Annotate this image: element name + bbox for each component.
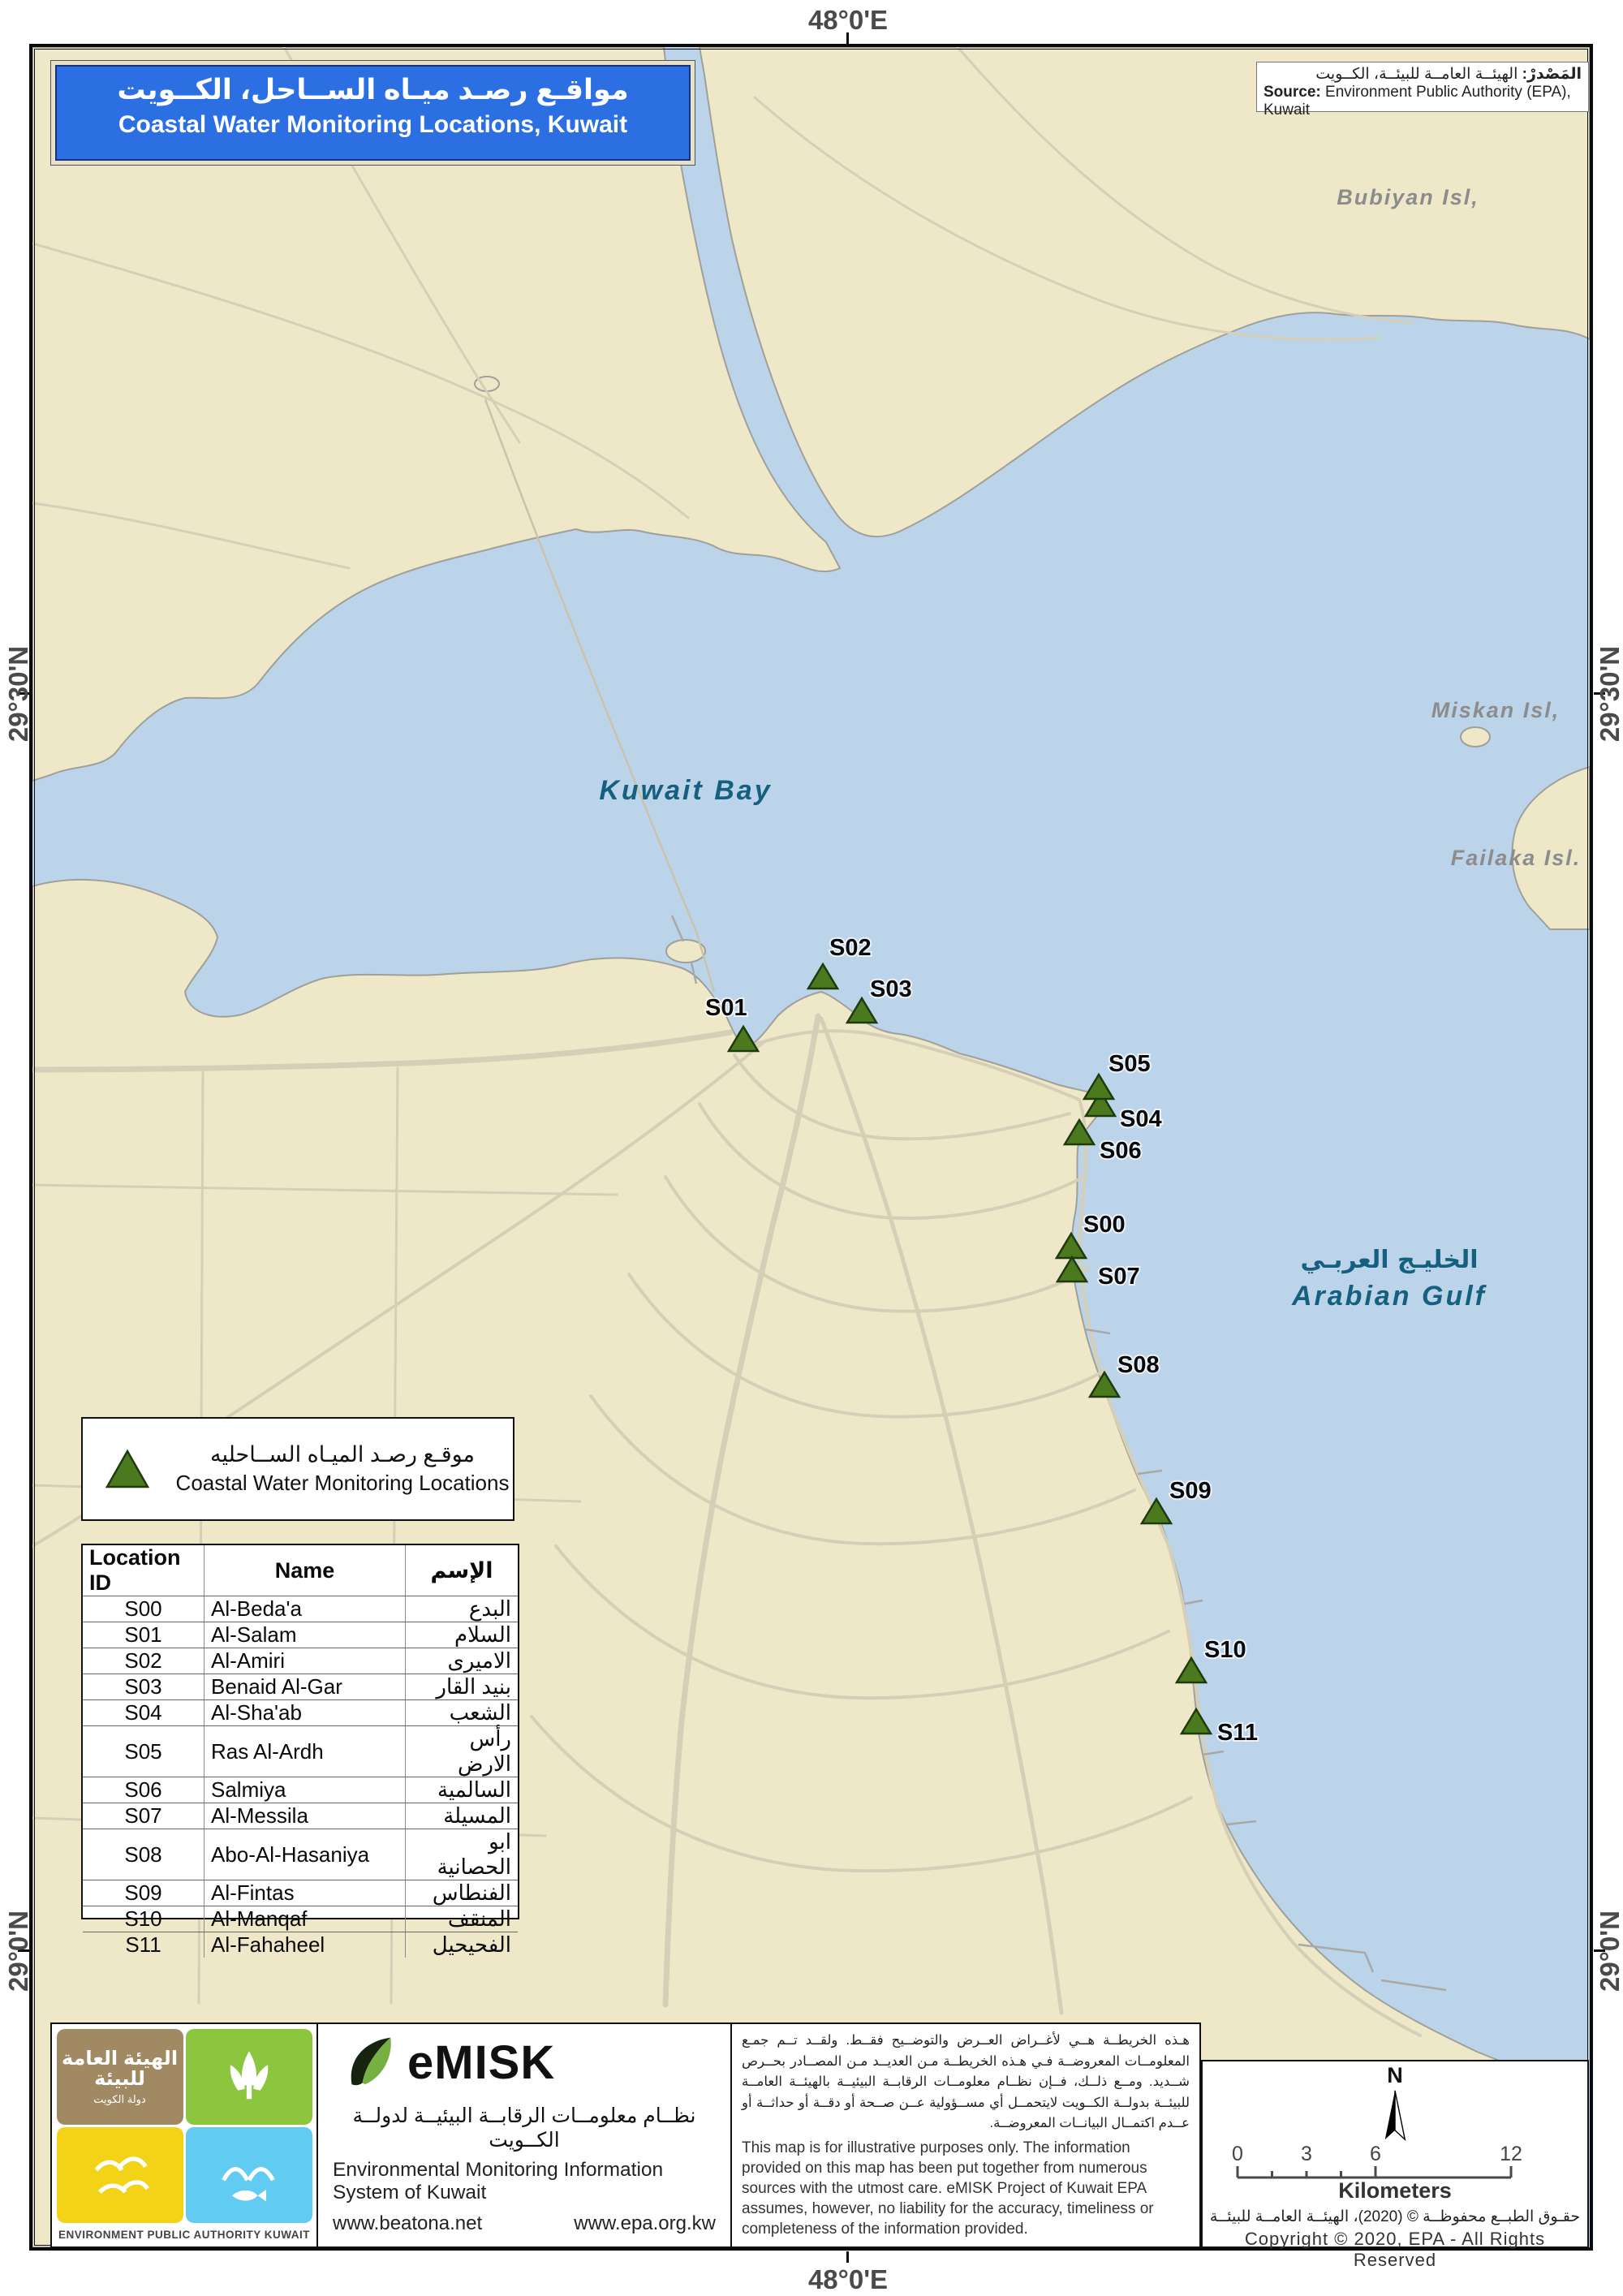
scale-box: N 0 3 6 12 Kilometers حقـوق الطبــ	[1201, 2060, 1589, 2248]
table-row: S06 Salmiya السالمية	[83, 1777, 518, 1803]
cell-location-id: S10	[83, 1906, 204, 1932]
miskan-island	[1461, 727, 1490, 747]
epa-logo: الهيئة العامة للبيئة دولة الكويت	[57, 2029, 312, 2223]
cell-name-ar: بنيد القار	[406, 1674, 518, 1699]
legend-box: موقـع رصـد الميـاه الســاحليه Coastal Wa…	[81, 1417, 514, 1521]
table-row: S02 Al-Amiri الاميرى	[83, 1648, 518, 1674]
cell-name: Al-Messila	[204, 1803, 406, 1829]
scale-12: 12	[1500, 2143, 1522, 2166]
table-row: S03 Benaid Al-Gar بنيد القار	[83, 1674, 518, 1700]
map-title-arabic: مواقـع رصـد ميـاه الســاحل، الكــويت	[57, 74, 689, 106]
source-box: المَصْدرْ: الهيئــة العامــة للبيئــة، ا…	[1256, 62, 1589, 112]
cell-name: Al-Salam	[204, 1622, 406, 1648]
emisk-english: Environmental Monitoring Information Sys…	[333, 2159, 716, 2204]
coord-left-lower: 29°0'N	[3, 1886, 36, 2016]
table-header-row: Location ID Name الإسم	[83, 1545, 518, 1596]
north-arrow-icon	[1379, 2088, 1411, 2142]
copyright-arabic: حقـوق الطبــع محفوظــة © (2020)، الهيئــ…	[1203, 2208, 1587, 2226]
table-row: S11 Al-Fahaheel الفحيحيل	[83, 1932, 518, 1958]
map-page: Kuwait Bay الخليـج العربـي Arabian Gulf …	[0, 0, 1623, 2296]
cell-name-ar: المنقف	[406, 1906, 518, 1932]
header-name: Name	[204, 1545, 406, 1596]
epa-tile-sea-icon	[186, 2127, 312, 2223]
cell-name: Al-Fintas	[204, 1880, 406, 1906]
cell-location-id: S05	[83, 1726, 204, 1777]
cell-name-ar: البدع	[406, 1596, 518, 1622]
epa-url[interactable]: www.epa.org.kw	[574, 2212, 716, 2235]
epa-tile-text: الهيئة العامة للبيئة	[57, 2048, 183, 2089]
cell-name-ar: الفنطاس	[406, 1880, 518, 1906]
title-box: مواقـع رصـد ميـاه الســاحل، الكــويت Coa…	[50, 60, 695, 166]
cell-location-id: S03	[83, 1674, 204, 1699]
cell-name: Al-Sha'ab	[204, 1700, 406, 1725]
beatona-url[interactable]: www.beatona.net	[333, 2212, 482, 2235]
cell-location-id: S08	[83, 1829, 204, 1880]
coord-left-upper: 29°30'N	[3, 629, 36, 759]
station-label-S05: S05	[1109, 1051, 1151, 1077]
station-label-S00: S00	[1083, 1212, 1126, 1238]
cell-location-id: S11	[83, 1932, 204, 1958]
emisk-arabic: نظــام معلومــات الرقابــة البيئيــة لدو…	[333, 2104, 716, 2152]
arabian-gulf-label-en: Arabian Gulf	[1291, 1281, 1487, 1312]
table-row: S07 Al-Messila المسيلة	[83, 1803, 518, 1829]
station-label-S11: S11	[1217, 1720, 1258, 1746]
cell-name: Benaid Al-Gar	[204, 1674, 406, 1699]
table-row: S09 Al-Fintas الفنطاس	[83, 1880, 518, 1906]
coord-bottom: 48°0'E	[775, 2264, 921, 2295]
cell-name-ar: الشعب	[406, 1700, 518, 1725]
epa-tile-subtext: دولة الكويت	[93, 2094, 145, 2105]
miskan-label: Miskan Isl,	[1431, 698, 1561, 722]
table-row: S01 Al-Salam السلام	[83, 1622, 518, 1648]
cell-name-ar: الفحيحيل	[406, 1932, 518, 1958]
header-location-id: Location ID	[83, 1545, 204, 1596]
epa-caption: ENVIRONMENT PUBLIC AUTHORITY KUWAIT	[58, 2229, 310, 2241]
table-row: S04 Al-Sha'ab الشعب	[83, 1700, 518, 1726]
cell-name: Abo-Al-Hasaniya	[204, 1829, 406, 1880]
kuwait-bay-label: Kuwait Bay	[599, 775, 772, 806]
cell-name: Al-Fahaheel	[204, 1932, 406, 1958]
stations-table: Location ID Name الإسم S00 Al-Beda'a الب…	[81, 1544, 519, 1919]
copyright-english: Copyright © 2020, EPA - All Rights Reser…	[1203, 2229, 1587, 2271]
station-label-S09: S09	[1169, 1478, 1212, 1504]
emisk-leaf-icon	[342, 2032, 403, 2092]
coord-top: 48°0'E	[775, 5, 921, 36]
disclaimer-arabic: هـذه الخريطــة هــي لأغــراض العــرض وال…	[742, 2031, 1190, 2134]
epa-tile-birds-icon	[57, 2127, 183, 2223]
emisk-logo-text: eMISK	[407, 2035, 555, 2090]
coord-right-lower: 29°0'N	[1595, 1886, 1623, 2016]
cell-name: Ras Al-Ardh	[204, 1726, 406, 1777]
source-label-ar: المَصْدرْ:	[1522, 66, 1582, 83]
station-label-S10: S10	[1204, 1637, 1246, 1663]
scale-0: 0	[1232, 2143, 1243, 2166]
cell-location-id: S04	[83, 1700, 204, 1725]
legend-label-en: Coastal Water Monitoring Locations	[172, 1471, 513, 1496]
cell-location-id: S01	[83, 1622, 204, 1648]
table-row: S05 Ras Al-Ardh رأس الارض	[83, 1726, 518, 1777]
cell-name-ar: الاميرى	[406, 1648, 518, 1674]
scale-3: 3	[1301, 2143, 1312, 2166]
cell-name: Al-Manqaf	[204, 1906, 406, 1932]
epa-tile-brown: الهيئة العامة للبيئة دولة الكويت	[57, 2029, 183, 2125]
scale-bar	[1203, 2164, 1591, 2180]
north-label: N	[1203, 2063, 1587, 2088]
cell-name-ar: السلام	[406, 1622, 518, 1648]
station-label-S03: S03	[870, 976, 912, 1002]
scale-numbers: 0 3 6 12	[1203, 2143, 1587, 2164]
station-label-S04: S04	[1120, 1106, 1162, 1132]
bubiyan-label: Bubiyan Isl,	[1337, 185, 1479, 209]
legend-triangle-icon	[83, 1448, 172, 1490]
map-title-english: Coastal Water Monitoring Locations, Kuwa…	[57, 111, 689, 139]
epa-tile-plant-icon	[186, 2029, 312, 2125]
epa-logo-box: الهيئة العامة للبيئة دولة الكويت ENVIRON…	[50, 2022, 318, 2248]
disclaimer-box: هـذه الخريطــة هــي لأغــراض العــرض وال…	[730, 2022, 1201, 2248]
coord-right-upper: 29°30'N	[1595, 629, 1623, 759]
scale-6: 6	[1370, 2143, 1381, 2166]
tick-bottom	[846, 2251, 849, 2263]
cell-name-ar: رأس الارض	[406, 1726, 518, 1777]
cell-name-ar: ابو الحصانية	[406, 1829, 518, 1880]
table-row: S08 Abo-Al-Hasaniya ابو الحصانية	[83, 1829, 518, 1880]
header-name-ar: الإسم	[406, 1545, 518, 1596]
cell-location-id: S09	[83, 1880, 204, 1906]
station-label-S06: S06	[1100, 1138, 1142, 1164]
cell-location-id: S00	[83, 1596, 204, 1622]
cell-location-id: S06	[83, 1777, 204, 1803]
scale-unit: Kilometers	[1203, 2178, 1587, 2203]
cell-location-id: S07	[83, 1803, 204, 1829]
disclaimer-english: This map is for illustrative purposes on…	[742, 2138, 1190, 2239]
emisk-box: eMISK نظــام معلومــات الرقابــة البيئيـ…	[316, 2022, 732, 2248]
station-label-S01: S01	[705, 995, 747, 1021]
cell-name: Al-Amiri	[204, 1648, 406, 1674]
source-text-ar: الهيئــة العامــة للبيئــة، الكــويت	[1315, 66, 1518, 83]
failaka-label: Failaka Isl.	[1451, 846, 1582, 870]
table-row: S00 Al-Beda'a البدع	[83, 1596, 518, 1622]
cell-location-id: S02	[83, 1648, 204, 1674]
legend-label-ar: موقـع رصـد الميـاه الســاحليه	[172, 1442, 513, 1467]
cell-name: Al-Beda'a	[204, 1596, 406, 1622]
station-label-S07: S07	[1098, 1264, 1140, 1290]
table-row: S10 Al-Manqaf المنقف	[83, 1906, 518, 1932]
table-body: S00 Al-Beda'a البدع S01 Al-Salam السلام …	[83, 1596, 518, 1958]
cell-name: Salmiya	[204, 1777, 406, 1803]
station-label-S02: S02	[829, 935, 872, 961]
station-label-S08: S08	[1117, 1352, 1160, 1378]
arabian-gulf-label-ar: الخليـج العربـي	[1301, 1246, 1479, 1274]
cell-name-ar: السالمية	[406, 1777, 518, 1803]
source-label-en: Source:	[1264, 84, 1321, 101]
cell-name-ar: المسيلة	[406, 1803, 518, 1829]
